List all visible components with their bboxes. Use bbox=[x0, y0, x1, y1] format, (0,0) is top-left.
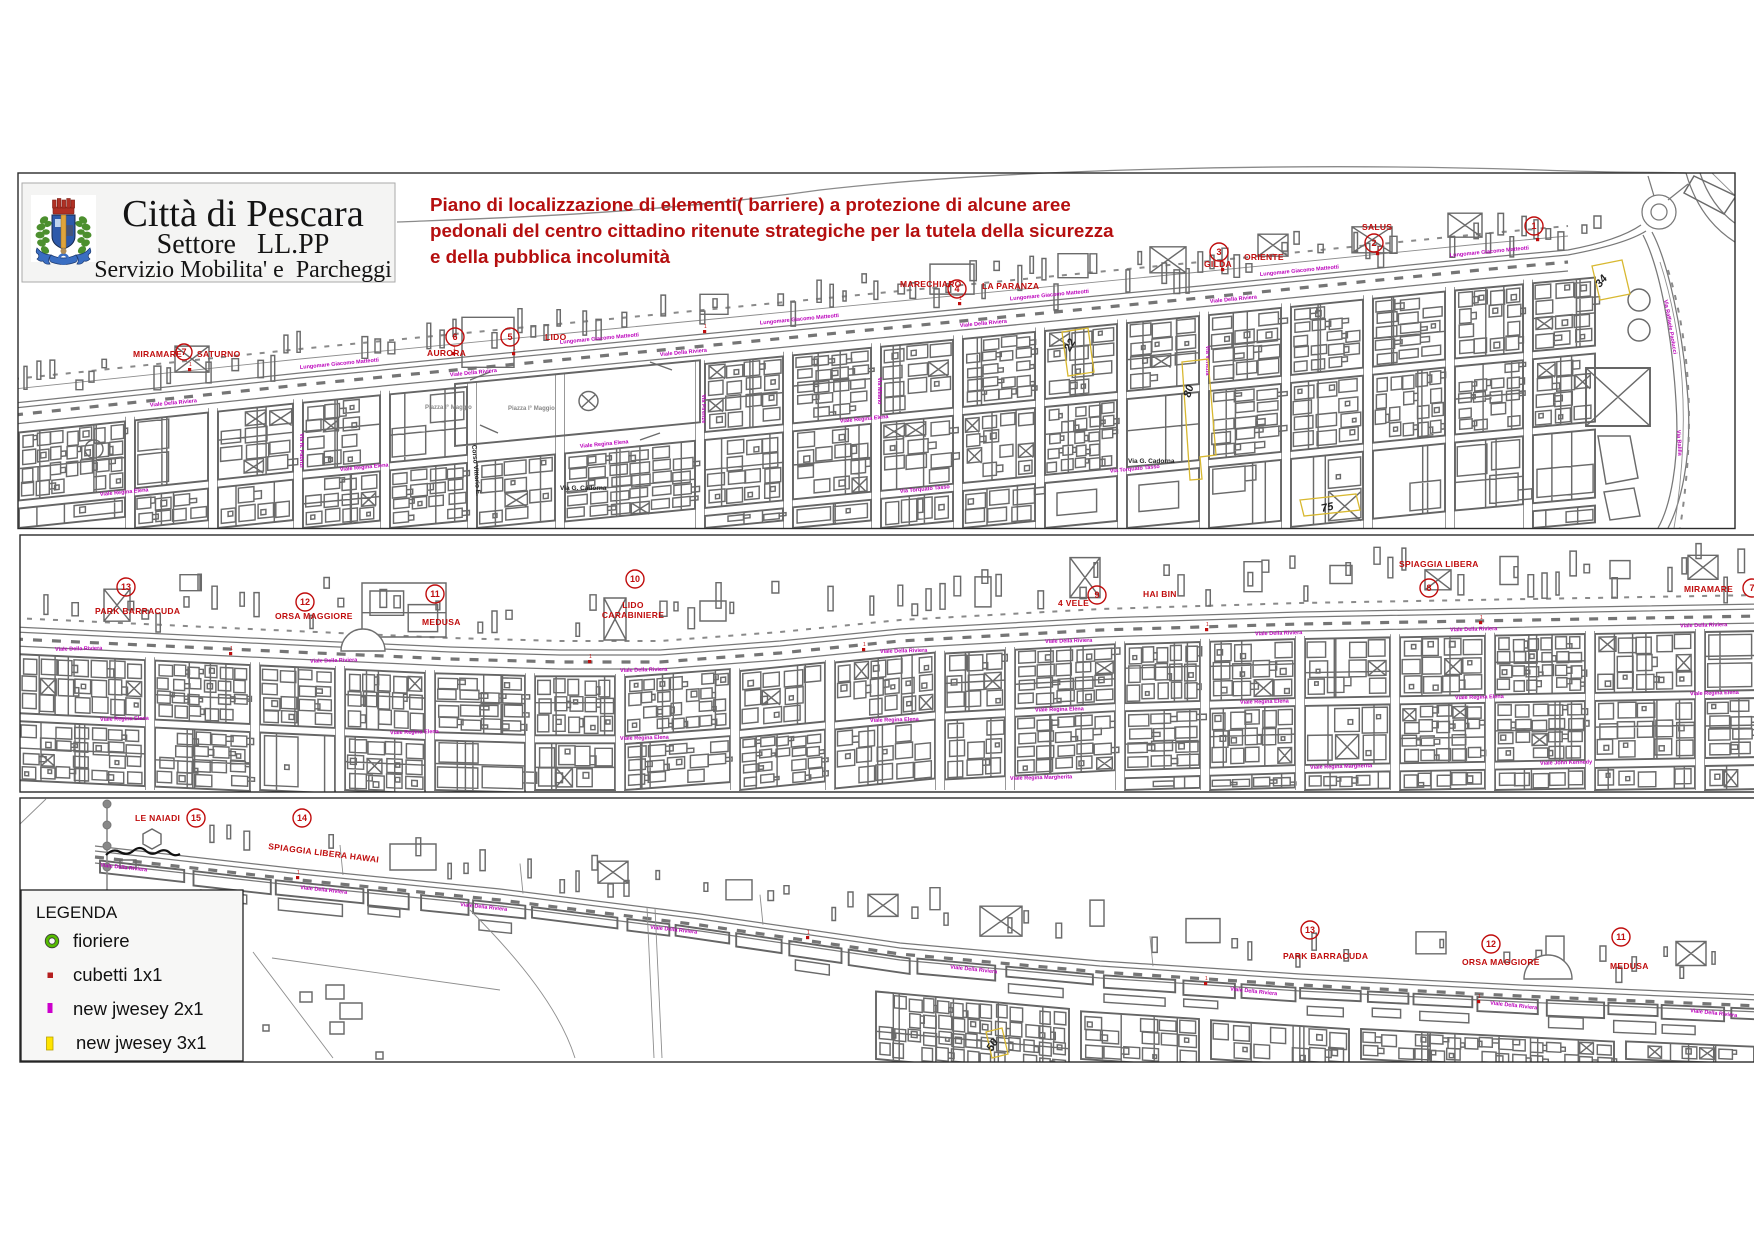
svg-text:SPIAGGIA LIBERA HAWAI: SPIAGGIA LIBERA HAWAI bbox=[268, 841, 380, 865]
svg-text:Viale Della Riviera: Viale Della Riviera bbox=[620, 667, 668, 674]
svg-text:SALUS: SALUS bbox=[1362, 222, 1392, 232]
svg-text:1: 1 bbox=[807, 930, 810, 936]
svg-text:new jwesey 2x1: new jwesey 2x1 bbox=[73, 998, 204, 1019]
svg-text:Viale Della Riviera: Viale Della Riviera bbox=[310, 657, 358, 664]
svg-text:LIDO: LIDO bbox=[622, 600, 644, 610]
svg-text:PARK BARRACUDA: PARK BARRACUDA bbox=[95, 606, 180, 616]
svg-text:1: 1 bbox=[704, 324, 707, 330]
svg-text:4 VELE: 4 VELE bbox=[1058, 598, 1089, 608]
svg-text:MIRAMARE: MIRAMARE bbox=[1684, 584, 1733, 594]
svg-text:Corso Vittorio E.: Corso Vittorio E. bbox=[470, 445, 481, 497]
svg-text:Piano di localizzazione di ele: Piano di localizzazione di elementi( bar… bbox=[430, 194, 1071, 215]
svg-text:Via Milano: Via Milano bbox=[876, 377, 882, 405]
svg-text:Viale Della Riviera: Viale Della Riviera bbox=[1255, 630, 1303, 637]
svg-text:5: 5 bbox=[507, 332, 512, 342]
svg-text:Viale Della Riviera: Viale Della Riviera bbox=[1045, 638, 1093, 645]
svg-text:1: 1 bbox=[1377, 246, 1380, 252]
svg-text:7: 7 bbox=[1749, 583, 1754, 593]
svg-text:LE NAIADI: LE NAIADI bbox=[135, 813, 180, 823]
svg-text:Servizio Mobilita' e Parchegg: Servizio Mobilita' e Parcheggi bbox=[94, 257, 392, 283]
svg-text:MIRAMARE: MIRAMARE bbox=[133, 349, 182, 359]
svg-text:3: 3 bbox=[1216, 247, 1221, 257]
svg-text:1: 1 bbox=[1205, 976, 1208, 982]
svg-text:11: 11 bbox=[430, 589, 440, 599]
svg-text:e della pubblica incolumità: e della pubblica incolumità bbox=[430, 246, 671, 267]
svg-text:6: 6 bbox=[452, 332, 457, 342]
svg-text:ORSA MAGGIORE: ORSA MAGGIORE bbox=[1462, 957, 1540, 967]
svg-text:SATURNO: SATURNO bbox=[197, 349, 241, 359]
svg-text:13: 13 bbox=[1305, 925, 1315, 935]
svg-text:11: 11 bbox=[1616, 932, 1626, 942]
svg-text:AURORA: AURORA bbox=[427, 348, 466, 358]
svg-text:Viale Regina Elena: Viale Regina Elena bbox=[1690, 690, 1740, 697]
svg-text:1: 1 bbox=[453, 346, 456, 352]
svg-text:new jwesey 3x1: new jwesey 3x1 bbox=[76, 1032, 207, 1053]
svg-text:1: 1 bbox=[189, 362, 192, 368]
svg-text:Viale Regina Elena: Viale Regina Elena bbox=[390, 729, 440, 736]
svg-text:15: 15 bbox=[191, 813, 201, 823]
svg-text:Viale Regina Elena: Viale Regina Elena bbox=[870, 717, 920, 724]
svg-text:Piazza I° Maggio: Piazza I° Maggio bbox=[425, 405, 472, 411]
svg-text:Viale Della Riviera: Viale Della Riviera bbox=[55, 646, 103, 653]
svg-text:1: 1 bbox=[959, 296, 962, 302]
svg-text:Viale Della Riviera: Viale Della Riviera bbox=[880, 648, 928, 655]
svg-text:14: 14 bbox=[297, 813, 307, 823]
svg-text:Viale Regina Margherita: Viale Regina Margherita bbox=[1010, 774, 1073, 782]
svg-text:4: 4 bbox=[954, 284, 959, 294]
svg-text:1: 1 bbox=[1531, 221, 1536, 231]
svg-text:Viale Della Riviera: Viale Della Riviera bbox=[1230, 986, 1279, 997]
svg-text:Viale Regina Elena: Viale Regina Elena bbox=[100, 716, 150, 723]
svg-text:Via N. Fabrizi: Via N. Fabrizi bbox=[298, 433, 304, 468]
svg-text:ORSA MAGGIORE: ORSA MAGGIORE bbox=[275, 611, 353, 621]
svg-text:MEDUSA: MEDUSA bbox=[422, 617, 461, 627]
svg-text:1: 1 bbox=[1537, 232, 1540, 238]
svg-text:12: 12 bbox=[1486, 939, 1496, 949]
svg-text:1: 1 bbox=[1478, 994, 1481, 1000]
svg-text:1: 1 bbox=[863, 642, 866, 648]
svg-text:Viale Della Riviera: Viale Della Riviera bbox=[1450, 626, 1498, 633]
svg-text:Viale Regina Elena: Viale Regina Elena bbox=[1455, 694, 1505, 701]
svg-text:1: 1 bbox=[1206, 622, 1209, 628]
svg-text:1: 1 bbox=[297, 870, 300, 876]
svg-text:pedonali del centro cittadino: pedonali del centro cittadino ritenute s… bbox=[430, 220, 1114, 241]
svg-text:1: 1 bbox=[1222, 262, 1225, 268]
svg-text:1: 1 bbox=[589, 654, 592, 660]
svg-text:1: 1 bbox=[230, 646, 233, 652]
svg-text:7: 7 bbox=[181, 347, 186, 357]
svg-text:Via Firenze: Via Firenze bbox=[700, 394, 706, 423]
svg-text:HAI BIN: HAI BIN bbox=[1143, 589, 1177, 599]
svg-text:13: 13 bbox=[121, 582, 131, 592]
svg-text:Piazza I° Maggio: Piazza I° Maggio bbox=[508, 406, 555, 412]
svg-text:2: 2 bbox=[1371, 238, 1376, 248]
svg-text:10: 10 bbox=[630, 574, 640, 584]
svg-text:cubetti 1x1: cubetti 1x1 bbox=[73, 964, 162, 985]
svg-text:Via G. Cadorna: Via G. Cadorna bbox=[560, 485, 607, 492]
svg-text:SPIAGGIA LIBERA: SPIAGGIA LIBERA bbox=[1399, 559, 1479, 569]
svg-text:Viale Regina Elena: Viale Regina Elena bbox=[1240, 698, 1290, 705]
svg-text:LEGENDA: LEGENDA bbox=[36, 903, 118, 922]
svg-text:Viale Regina Margherita: Viale Regina Margherita bbox=[1310, 763, 1373, 771]
svg-text:Viale Della Riviera: Viale Della Riviera bbox=[1680, 622, 1728, 629]
svg-text:ORIENTE: ORIENTE bbox=[1244, 252, 1284, 262]
svg-text:MEDUSA: MEDUSA bbox=[1610, 961, 1649, 971]
svg-text:LA PARANZA: LA PARANZA bbox=[982, 281, 1039, 291]
svg-text:9: 9 bbox=[1094, 590, 1099, 600]
svg-text:Via G. Cadorna: Via G. Cadorna bbox=[1128, 458, 1175, 465]
svg-text:12: 12 bbox=[300, 597, 310, 607]
svg-text:1: 1 bbox=[513, 346, 516, 352]
svg-text:fioriere: fioriere bbox=[73, 930, 130, 951]
svg-text:8: 8 bbox=[1426, 583, 1431, 593]
svg-text:CARABINIERE: CARABINIERE bbox=[602, 610, 664, 620]
svg-text:PARK BARRACUDA: PARK BARRACUDA bbox=[1283, 951, 1368, 961]
svg-text:Settore LL.PP: Settore LL.PP bbox=[157, 229, 330, 260]
svg-text:1: 1 bbox=[1480, 615, 1483, 621]
